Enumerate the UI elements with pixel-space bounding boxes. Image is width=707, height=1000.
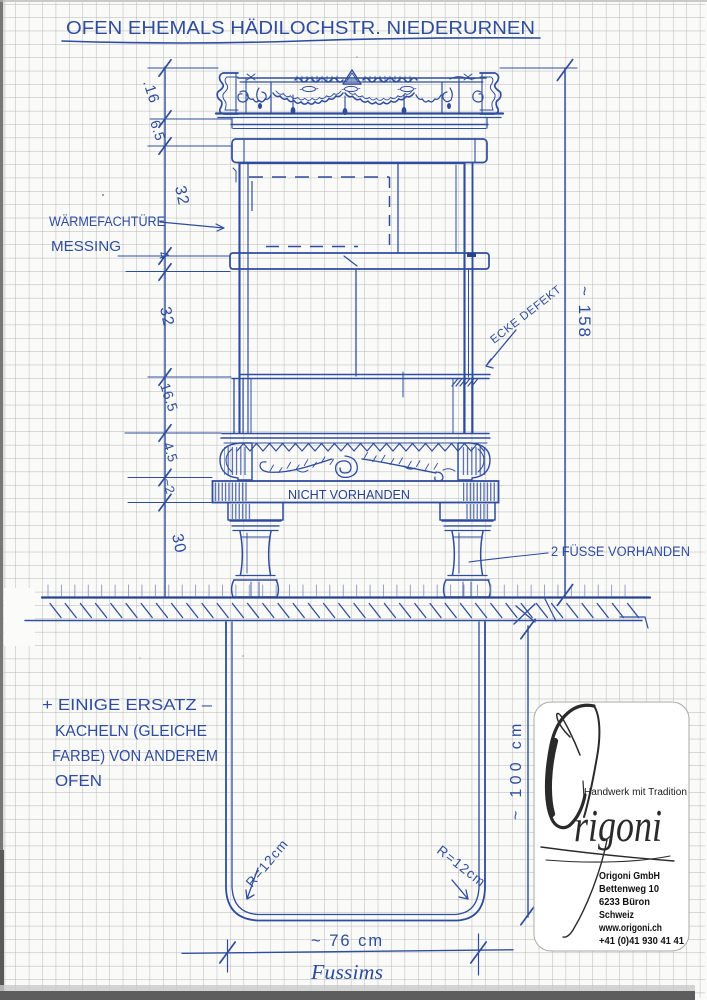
svg-text:6233 Büron: 6233 Büron	[599, 897, 650, 908]
svg-text:Handwerk mit Tradition: Handwerk mit Tradition	[584, 787, 687, 798]
svg-text:+41 (0)41 930 41 41: +41 (0)41 930 41 41	[599, 936, 684, 947]
svg-text:OFEN: OFEN	[55, 773, 102, 790]
svg-text:Origoni GmbH: Origoni GmbH	[599, 871, 660, 882]
svg-text:KACHELN (GLEICHE: KACHELN (GLEICHE	[55, 723, 207, 740]
svg-text:FARBE) VON ANDEREM: FARBE) VON ANDEREM	[52, 748, 218, 765]
svg-text:Bettenweg 10: Bettenweg 10	[599, 884, 659, 895]
svg-text:+ EINIGE ERSATZ –: + EINIGE ERSATZ –	[42, 697, 212, 714]
svg-text:rigoni: rigoni	[574, 801, 662, 851]
svg-text:2 FÜSSE VORHANDEN: 2 FÜSSE VORHANDEN	[551, 544, 690, 559]
svg-text:~ 158: ~ 158	[575, 286, 594, 339]
svg-text:WÄRMEFACHTÜRE: WÄRMEFACHTÜRE	[49, 214, 165, 229]
svg-text:Fussims: Fussims	[310, 960, 383, 984]
svg-text:MESSING: MESSING	[51, 239, 121, 255]
svg-text:~ 76 cm: ~ 76 cm	[311, 932, 384, 950]
svg-text:www.origoni.ch: www.origoni.ch	[598, 923, 662, 934]
svg-text:OFEN EHEMALS HÄDILOCHSTR. NIED: OFEN EHEMALS HÄDILOCHSTR. NIEDERURNEN	[66, 18, 535, 38]
svg-text:Schweiz: Schweiz	[599, 910, 634, 921]
svg-text:~ 100 cm: ~ 100 cm	[508, 719, 525, 820]
svg-text:NICHT VORHANDEN: NICHT VORHANDEN	[288, 488, 410, 502]
